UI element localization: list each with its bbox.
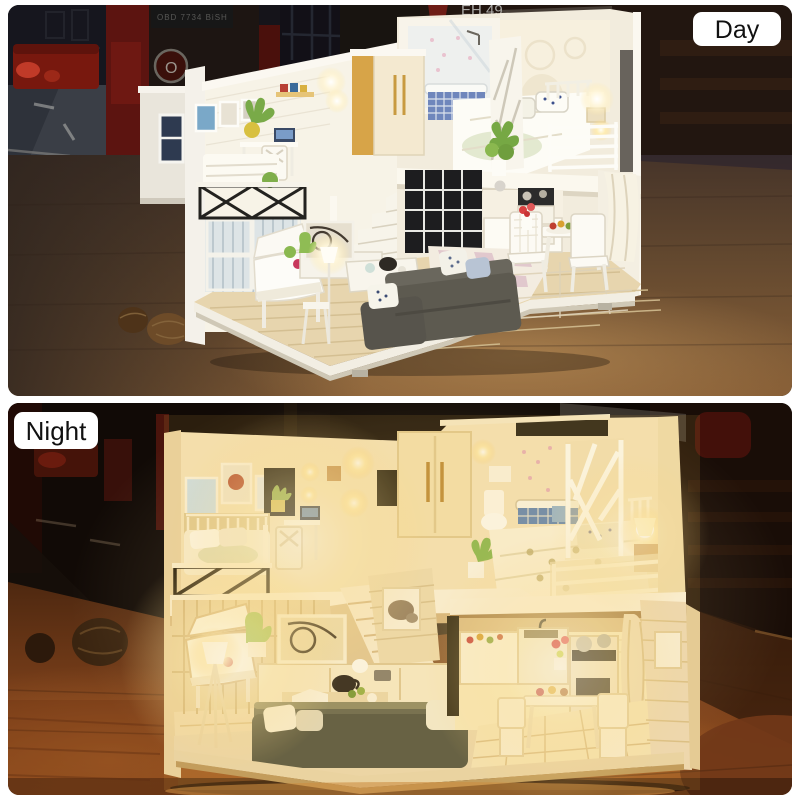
svg-text:O: O [165,60,177,77]
svg-text:Night: Night [26,416,87,446]
svg-text:OBD 7734 BiSH: OBD 7734 BiSH [157,13,228,22]
svg-text:Day: Day [715,16,760,44]
